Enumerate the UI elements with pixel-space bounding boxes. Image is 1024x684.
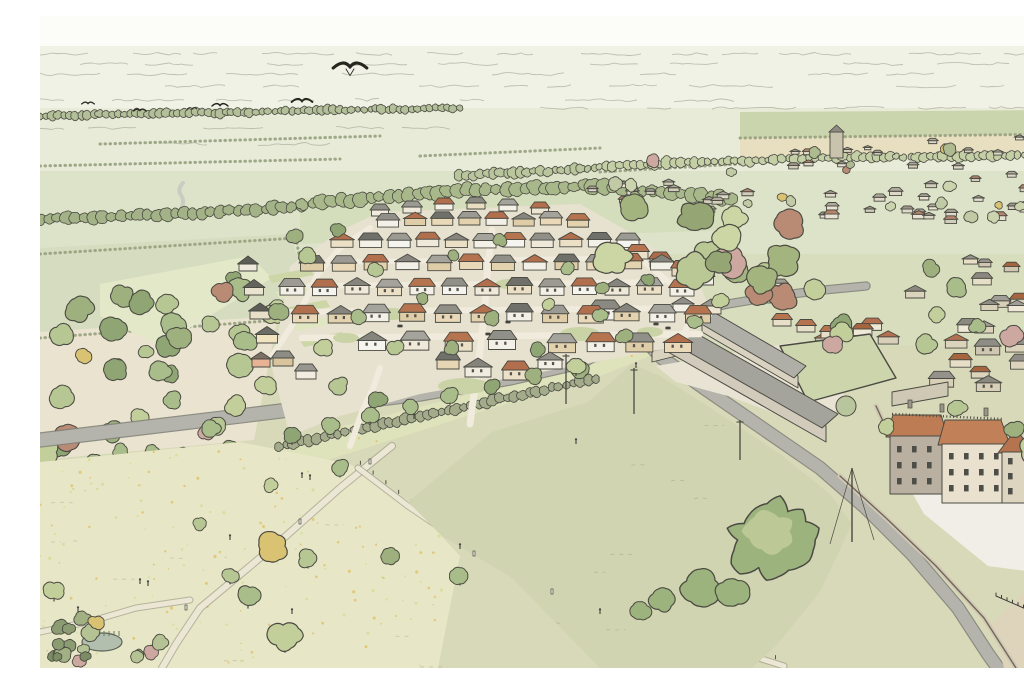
meadow-speckle: [359, 526, 361, 528]
meadow-speckle: [240, 610, 242, 612]
car: [485, 333, 490, 336]
house: [291, 305, 319, 323]
garden-circle: [836, 396, 856, 416]
meadow-speckle: [205, 582, 208, 585]
meadow-speckle: [148, 471, 151, 474]
tree: [449, 567, 467, 584]
manor-window: [979, 485, 984, 491]
tree: [227, 353, 254, 378]
meadow-speckle: [70, 491, 72, 493]
meadow-speckle: [202, 569, 204, 571]
tree: [269, 304, 289, 321]
meadow-speckle: [239, 458, 241, 460]
meadow-speckle: [362, 546, 364, 548]
hedgerow-bush: [711, 158, 718, 165]
manor-window: [1008, 473, 1013, 479]
meadow-speckle: [366, 632, 369, 635]
meadow-speckle: [88, 458, 91, 461]
meadow-speckle: [259, 522, 262, 525]
meadow-speckle: [300, 543, 302, 545]
meadow-speckle: [385, 599, 387, 601]
house: [272, 351, 295, 366]
meadow-speckle: [251, 651, 254, 654]
meadow-speckle: [315, 575, 318, 578]
tree: [823, 336, 843, 353]
waymarker-post: [473, 551, 475, 556]
meadow-speckle: [43, 620, 45, 622]
house: [539, 211, 563, 225]
house: [645, 189, 657, 195]
meadow-speckle: [138, 484, 140, 486]
house: [970, 176, 981, 182]
meadow-speckle: [183, 564, 185, 566]
person: [575, 438, 577, 440]
meadow-speckle: [324, 568, 326, 570]
manor-window: [964, 469, 969, 475]
meadow-speckle: [440, 589, 443, 592]
manor-window: [912, 446, 917, 452]
meadow-speckle: [140, 499, 143, 502]
meadow-speckle: [141, 511, 144, 514]
house: [971, 273, 993, 285]
meadow-speckle: [307, 471, 309, 473]
manor-window: [964, 485, 969, 491]
meadow-speckle: [90, 482, 92, 484]
meadow-speckle: [54, 533, 55, 534]
meadow-speckle: [132, 637, 135, 640]
house: [434, 305, 462, 323]
manor-window: [979, 469, 984, 475]
meadow-speckle: [227, 661, 229, 663]
meadow-speckle: [285, 586, 287, 588]
meadow-speckle: [63, 506, 65, 508]
meadow-speckle: [42, 625, 44, 627]
meadow-speckle: [96, 488, 98, 490]
meadow-speckle: [380, 623, 382, 625]
meadow-speckle: [164, 550, 166, 552]
meadow-speckle: [432, 604, 433, 605]
tree: [286, 229, 303, 244]
house: [279, 279, 306, 296]
meadow-speckle: [149, 643, 151, 645]
meadow-speckle: [348, 570, 351, 573]
meadow-speckle: [176, 628, 178, 630]
meadow-speckle: [268, 624, 270, 626]
meadow-speckle: [419, 664, 421, 666]
tree: [715, 579, 750, 606]
meadow-speckle: [358, 437, 360, 439]
house: [944, 209, 958, 216]
meadow-speckle: [225, 556, 227, 558]
person: [309, 474, 311, 476]
meadow-speckle: [72, 488, 74, 490]
meadow-speckle: [244, 548, 246, 550]
meadow-speckle: [295, 548, 297, 550]
house: [918, 194, 930, 200]
tree: [43, 582, 64, 599]
meadow-speckle: [70, 597, 73, 600]
person: [139, 578, 141, 580]
manor-window: [927, 446, 932, 452]
manor-window: [979, 453, 984, 459]
meadow-speckle: [317, 522, 319, 524]
house: [457, 211, 481, 225]
meadow-speckle: [343, 614, 346, 617]
house: [977, 259, 992, 267]
meadow-speckle: [213, 555, 216, 558]
meadow-speckle: [196, 477, 199, 480]
meadow-speckle: [296, 488, 297, 489]
waymarker-post: [369, 459, 371, 464]
manor-roof: [886, 415, 948, 437]
meadow-speckle: [169, 457, 171, 459]
meadow-speckle: [84, 489, 86, 491]
masterplan-illustration: [40, 16, 1024, 668]
car: [505, 321, 510, 324]
house: [711, 197, 725, 204]
person: [635, 362, 637, 364]
house: [376, 279, 403, 296]
church-tower: [830, 132, 843, 158]
meadow-speckle: [415, 544, 417, 546]
house: [787, 163, 799, 169]
meadow-speckle: [312, 632, 314, 634]
house: [539, 279, 566, 296]
house: [587, 186, 599, 192]
manor-window: [994, 485, 999, 491]
house: [566, 214, 590, 228]
manor-window: [994, 453, 999, 459]
meadow-speckle: [145, 528, 147, 530]
meadow-speckle: [438, 535, 441, 538]
hedgerow-bush: [264, 108, 271, 115]
house: [586, 333, 616, 352]
meadow-speckle: [434, 596, 436, 598]
house: [505, 303, 533, 321]
meadow-speckle: [278, 458, 280, 460]
house: [547, 334, 577, 353]
meadow-speckle: [95, 577, 97, 579]
meadow-speckle: [79, 471, 82, 474]
meadow-speckle: [152, 596, 154, 598]
meadow-speckle: [312, 488, 315, 491]
meadow-speckle: [376, 440, 378, 442]
meadow-speckle: [172, 623, 174, 625]
tree: [687, 315, 703, 328]
manor-window: [927, 478, 932, 484]
meadow-speckle: [115, 516, 118, 519]
meadow-speckle: [240, 649, 242, 651]
manor-window: [897, 446, 902, 452]
manor-window: [912, 462, 917, 468]
meadow-speckle: [252, 656, 254, 658]
house: [974, 339, 1001, 355]
waymarker-post: [299, 519, 301, 524]
house: [506, 277, 533, 294]
manor-wall: [1002, 452, 1024, 503]
green-pocket: [333, 333, 359, 343]
person: [599, 608, 601, 610]
person: [229, 534, 231, 536]
meadow-speckle: [352, 590, 355, 593]
meadow-speckle: [415, 602, 418, 605]
meadow-speckle: [420, 581, 422, 583]
meadow-speckle: [312, 518, 315, 521]
house: [434, 198, 455, 210]
meadow-speckle: [283, 521, 285, 523]
meadow-speckle: [101, 483, 104, 486]
hedgerow-bush: [438, 408, 445, 416]
meadow-speckle: [404, 575, 406, 577]
meadow-speckle: [153, 578, 155, 580]
house: [398, 304, 426, 322]
house: [571, 278, 598, 295]
house: [441, 278, 468, 295]
meadow-speckle: [219, 551, 221, 553]
tree: [417, 293, 428, 305]
meadow-speckle: [242, 581, 244, 583]
meadow-speckle: [222, 511, 225, 514]
house: [490, 255, 516, 270]
tree: [104, 359, 127, 381]
chimney: [908, 400, 912, 408]
tree: [647, 154, 659, 168]
meadow-speckle: [373, 617, 376, 620]
tree: [964, 211, 978, 223]
chimney: [984, 408, 988, 416]
meadow-speckle: [410, 618, 412, 620]
hedgerow-bush: [592, 375, 600, 384]
meadow-speckle: [434, 619, 436, 621]
house: [387, 233, 412, 248]
meadow-speckle: [274, 505, 276, 507]
house: [311, 279, 338, 296]
meadow-speckle: [299, 514, 300, 515]
hedgerow-bush: [1014, 151, 1021, 160]
meadow-speckle: [76, 632, 78, 634]
meadow-speckle: [375, 544, 377, 546]
meadow-speckle: [51, 524, 53, 526]
manor-window: [949, 469, 954, 475]
meadow-speckle: [381, 576, 383, 578]
manor-window: [897, 462, 902, 468]
house: [466, 197, 487, 209]
meadow-speckle: [62, 543, 65, 546]
meadow-speckle: [321, 622, 324, 625]
house: [402, 201, 423, 213]
tree: [846, 161, 854, 169]
tree: [677, 203, 714, 231]
house: [358, 233, 383, 248]
meadow-speckle: [105, 605, 107, 607]
chimney: [940, 404, 944, 412]
meadow-speckle: [128, 477, 130, 479]
house: [963, 148, 973, 153]
tree: [943, 143, 956, 156]
house: [901, 206, 915, 213]
field-patch: [740, 110, 1024, 138]
person: [413, 413, 415, 415]
meadow-speckle: [171, 501, 174, 504]
meadow-speckle: [89, 477, 91, 479]
meadow-speckle: [137, 515, 139, 517]
meadow-speckle: [240, 643, 241, 644]
house: [530, 233, 555, 248]
meadow-speckle: [141, 484, 143, 486]
meadow-speckle: [199, 621, 201, 623]
meadow-speckle: [186, 544, 188, 546]
estate-street: [470, 408, 472, 424]
manor-window: [949, 453, 954, 459]
cottage: [772, 314, 793, 327]
meadow-speckle: [301, 532, 303, 534]
house: [648, 304, 676, 322]
house: [415, 232, 440, 247]
person: [459, 543, 461, 545]
meadow-speckle: [175, 454, 178, 457]
house: [376, 214, 400, 228]
meadow-speckle: [183, 485, 185, 487]
waymarker-post: [551, 589, 553, 594]
car: [653, 323, 658, 326]
meadow-speckle: [153, 451, 155, 453]
meadow-speckle: [323, 564, 325, 566]
meadow-speckle: [427, 587, 430, 590]
meadow-speckle: [46, 650, 48, 652]
manor-window: [964, 453, 969, 459]
hedgerow-bush: [361, 107, 368, 113]
tree: [885, 202, 895, 211]
meadow-speckle: [96, 652, 98, 654]
tree: [52, 638, 64, 650]
house: [295, 364, 318, 379]
meadow-speckle: [200, 504, 203, 507]
house: [825, 202, 839, 209]
tree: [595, 282, 609, 294]
car: [665, 327, 670, 330]
cottage: [796, 320, 817, 333]
meadow-speckle: [281, 497, 284, 500]
meadow-speckle: [181, 548, 184, 551]
meadow-speckle: [419, 551, 422, 554]
manor-window: [927, 462, 932, 468]
meadow-speckle: [365, 563, 367, 565]
meadow-speckle: [305, 598, 308, 601]
house: [485, 212, 509, 226]
house: [1003, 262, 1020, 272]
tree: [987, 211, 999, 223]
meadow-speckle: [285, 458, 287, 460]
meadow-speckle: [395, 615, 397, 617]
person: [291, 608, 293, 610]
manor-window: [1008, 488, 1013, 494]
hedgerow-bush: [223, 205, 235, 215]
meadow-speckle: [275, 492, 278, 495]
meadow-speckle: [134, 597, 136, 599]
meadow-speckle: [402, 599, 404, 601]
meadow-speckle: [209, 511, 211, 513]
meadow-speckle: [217, 450, 220, 453]
hedgerow-bush: [347, 106, 355, 113]
house: [400, 331, 430, 350]
tree: [53, 653, 62, 662]
meadow-speckle: [415, 571, 418, 574]
tree: [943, 181, 956, 191]
manor-window: [897, 478, 902, 484]
house: [487, 330, 517, 349]
house: [1006, 171, 1018, 177]
waymarker-post: [185, 605, 187, 610]
hedgerow-bush: [539, 386, 549, 396]
house: [943, 216, 958, 224]
house: [949, 354, 973, 368]
house: [498, 199, 519, 211]
house: [927, 138, 938, 143]
meadow-speckle: [277, 563, 279, 565]
meadow-speckle: [59, 562, 61, 564]
manor-window: [949, 485, 954, 491]
house: [888, 188, 903, 196]
meadow-speckle: [48, 557, 51, 560]
manor-window: [1008, 458, 1013, 464]
person: [77, 606, 79, 608]
meadow-speckle: [243, 467, 246, 470]
car: [397, 325, 402, 328]
meadow-speckle: [225, 623, 228, 626]
meadow-speckle: [70, 484, 73, 487]
meadow-speckle: [355, 527, 357, 529]
manor-window: [912, 478, 917, 484]
meadow-speckle: [153, 564, 155, 566]
house: [430, 212, 454, 226]
house: [873, 194, 887, 201]
house: [458, 254, 484, 270]
meadow-speckle: [372, 589, 375, 592]
hedgerow-bush: [401, 105, 409, 114]
meadow-speckle: [166, 611, 168, 613]
house: [331, 256, 357, 271]
meadow-speckle: [337, 541, 340, 544]
illustration-canvas: [40, 16, 1024, 668]
meadow-speckle: [434, 552, 436, 554]
meadow-speckle: [170, 606, 173, 609]
meadow-speckle: [148, 576, 150, 578]
meadow-speckle: [168, 568, 169, 569]
meadow-speckle: [172, 526, 174, 528]
meadow-speckle: [129, 463, 131, 465]
person: [147, 580, 149, 582]
manor-window: [994, 469, 999, 475]
tree: [592, 309, 608, 322]
person: [301, 472, 303, 474]
house: [872, 150, 882, 155]
meadow-speckle: [262, 525, 265, 528]
tree: [484, 310, 499, 326]
meadow-speckle: [365, 645, 368, 648]
tree: [448, 250, 459, 261]
meadow-speckle: [88, 526, 90, 528]
manor-roof: [938, 420, 1010, 445]
meadow-speckle: [62, 471, 64, 473]
meadow-speckle: [354, 599, 357, 602]
house: [823, 210, 839, 219]
house: [907, 162, 919, 168]
